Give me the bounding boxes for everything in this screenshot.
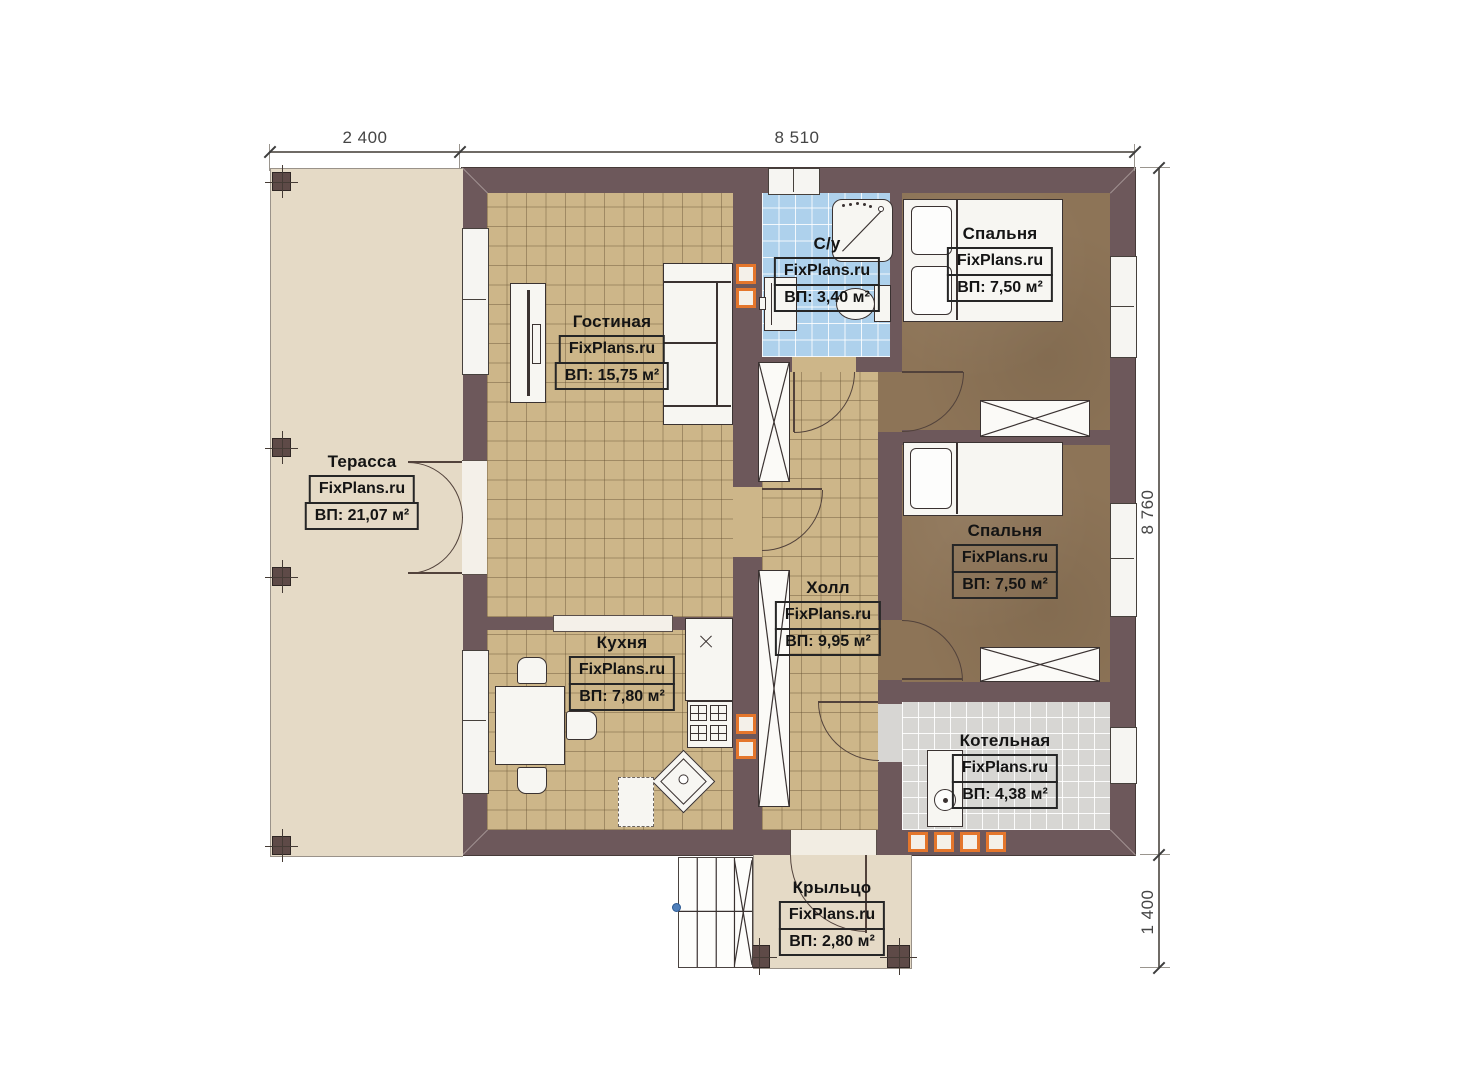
area-box: ВП: 21,07 м² bbox=[305, 502, 419, 531]
vent-icon bbox=[960, 832, 980, 852]
counter-x-mark bbox=[699, 634, 713, 648]
opening-terrace-door bbox=[462, 460, 487, 575]
kitchen-table bbox=[495, 686, 565, 765]
window-mullion bbox=[1111, 558, 1134, 559]
room-name: Спальня bbox=[968, 521, 1043, 541]
room-name: Котельная bbox=[960, 731, 1051, 751]
boiler-label: Котельная FixPlans.ru ВП: 4,38 м² bbox=[952, 731, 1058, 809]
watermark-box: FixPlans.ru bbox=[952, 754, 1058, 783]
area-box: ВП: 7,50 м² bbox=[947, 274, 1053, 303]
vent-icon bbox=[736, 264, 756, 284]
terrace-column bbox=[272, 836, 291, 855]
opening-bathroom-door bbox=[792, 357, 856, 372]
room-name: Терасса bbox=[328, 452, 397, 472]
bedroom1-label: Спальня FixPlans.ru ВП: 7,50 м² bbox=[947, 224, 1053, 302]
pillow bbox=[910, 448, 952, 509]
opening-bedroom2-door bbox=[878, 620, 902, 680]
porch-stairs bbox=[678, 857, 753, 968]
burner-icon bbox=[690, 705, 707, 721]
dashed-cabinet bbox=[618, 777, 654, 827]
floor-plan: 2 400 8 510 8 760 1 400 bbox=[0, 0, 1473, 1080]
wardrobe-bedroom1 bbox=[980, 400, 1090, 437]
terrace-column bbox=[272, 438, 291, 457]
vent-icon bbox=[986, 832, 1006, 852]
pillow bbox=[911, 266, 952, 315]
shower-knob bbox=[878, 206, 884, 212]
vent-icon bbox=[736, 288, 756, 308]
boiler-door-leaf bbox=[818, 701, 878, 703]
window-living bbox=[462, 228, 489, 375]
area-box: ВП: 4,38 м² bbox=[952, 781, 1058, 810]
vent-icon bbox=[736, 714, 756, 734]
wall-bedroom2-boiler bbox=[902, 682, 1110, 702]
watermark-box: FixPlans.ru bbox=[569, 656, 675, 685]
sofa-back-line bbox=[716, 281, 718, 407]
opening-living-kitchen bbox=[553, 615, 673, 632]
window-bedroom1 bbox=[1110, 256, 1137, 358]
terrace-column bbox=[272, 172, 291, 191]
vent-icon bbox=[736, 739, 756, 759]
bathroom-label: С/у FixPlans.ru ВП: 3,40 м² bbox=[774, 234, 880, 312]
washbasin-tap bbox=[759, 297, 766, 310]
sofa bbox=[663, 263, 733, 425]
opening-boiler-door bbox=[878, 704, 902, 762]
window-kitchen bbox=[462, 650, 489, 794]
bedroom1-door-leaf bbox=[902, 371, 963, 373]
porch-column bbox=[887, 945, 910, 968]
dim-house-depth: 8 760 bbox=[1138, 472, 1158, 552]
window-boiler bbox=[1110, 727, 1137, 784]
watermark-box: FixPlans.ru bbox=[559, 335, 665, 364]
pillow bbox=[911, 206, 952, 255]
kitchen-counter bbox=[685, 618, 733, 701]
bedroom2-door-leaf bbox=[902, 678, 962, 680]
terrace-column bbox=[272, 567, 291, 586]
area-box: ВП: 9,95 м² bbox=[775, 628, 881, 657]
terrace-door-leaf bbox=[408, 572, 462, 574]
dim-ext bbox=[1140, 967, 1170, 968]
vent-icon bbox=[934, 832, 954, 852]
tv-line bbox=[527, 290, 530, 396]
dim-ext bbox=[1140, 167, 1170, 168]
dim-porch-depth: 1 400 bbox=[1138, 872, 1158, 952]
tv-box bbox=[532, 324, 541, 364]
sofa-armrest-line bbox=[664, 281, 731, 283]
hall-closet-upper bbox=[758, 362, 790, 482]
washbasin-line bbox=[771, 283, 772, 325]
burner-icon bbox=[710, 725, 727, 741]
stairs-marker-dot bbox=[672, 903, 681, 912]
dim-house-width: 8 510 bbox=[747, 128, 847, 148]
room-name: Гостиная bbox=[573, 312, 651, 332]
watermark-box: FixPlans.ru bbox=[774, 257, 880, 286]
watermark-box: FixPlans.ru bbox=[309, 475, 415, 504]
dim-ext bbox=[269, 144, 270, 171]
kitchen-label: Кухня FixPlans.ru ВП: 7,80 м² bbox=[569, 633, 675, 711]
area-box: ВП: 3,40 м² bbox=[774, 284, 880, 313]
window-bedroom2 bbox=[1110, 503, 1137, 617]
burner-icon bbox=[690, 725, 707, 741]
chair bbox=[566, 711, 597, 740]
opening-entrance bbox=[790, 830, 877, 855]
area-box: ВП: 15,75 м² bbox=[555, 362, 669, 391]
bed-divider bbox=[956, 443, 958, 514]
opening-living-hall bbox=[733, 487, 762, 557]
watermark-box: FixPlans.ru bbox=[947, 247, 1053, 276]
watermark-box: FixPlans.ru bbox=[952, 544, 1058, 573]
sofa-seam-line bbox=[664, 342, 717, 344]
room-name: Крыльцо bbox=[793, 878, 872, 898]
vent-icon bbox=[908, 832, 928, 852]
window-bathroom bbox=[768, 168, 820, 195]
hall-label: Холл FixPlans.ru ВП: 9,95 м² bbox=[775, 578, 881, 656]
room-name: Кухня bbox=[597, 633, 648, 653]
window-mullion bbox=[1111, 306, 1134, 307]
window-mullion bbox=[463, 299, 486, 300]
dim-ext bbox=[459, 144, 460, 171]
area-box: ВП: 7,50 м² bbox=[952, 571, 1058, 600]
area-box: ВП: 2,80 м² bbox=[779, 928, 885, 957]
watermark-box: FixPlans.ru bbox=[775, 601, 881, 630]
opening-bedroom1-door bbox=[878, 372, 902, 432]
watermark-box: FixPlans.ru bbox=[779, 901, 885, 930]
dim-line-top bbox=[270, 151, 1135, 153]
room-name: Спальня bbox=[963, 224, 1038, 244]
dim-line-right bbox=[1158, 168, 1160, 968]
room-name: С/у bbox=[813, 234, 840, 254]
living-label: Гостиная FixPlans.ru ВП: 15,75 м² bbox=[555, 312, 669, 390]
room-name: Холл bbox=[806, 578, 849, 598]
bedroom2-label: Спальня FixPlans.ru ВП: 7,50 м² bbox=[952, 521, 1058, 599]
sofa-armrest-line bbox=[664, 405, 731, 407]
boiler-dot bbox=[943, 798, 948, 803]
burner-icon bbox=[710, 705, 727, 721]
chair bbox=[517, 767, 547, 794]
chair bbox=[517, 657, 547, 684]
porch-label: Крыльцо FixPlans.ru ВП: 2,80 м² bbox=[779, 878, 885, 956]
bathroom-door-leaf bbox=[793, 372, 795, 432]
wardrobe-bedroom2 bbox=[980, 647, 1100, 682]
dim-ext bbox=[1140, 854, 1170, 855]
dim-terrace-width: 2 400 bbox=[315, 128, 415, 148]
window-mullion bbox=[463, 720, 486, 721]
window-mullion bbox=[793, 169, 794, 192]
terrace-label: Терасса FixPlans.ru ВП: 21,07 м² bbox=[305, 452, 419, 530]
shower-head-dots bbox=[842, 204, 845, 207]
area-box: ВП: 7,80 м² bbox=[569, 683, 675, 712]
living-hall-door-leaf bbox=[762, 488, 822, 490]
